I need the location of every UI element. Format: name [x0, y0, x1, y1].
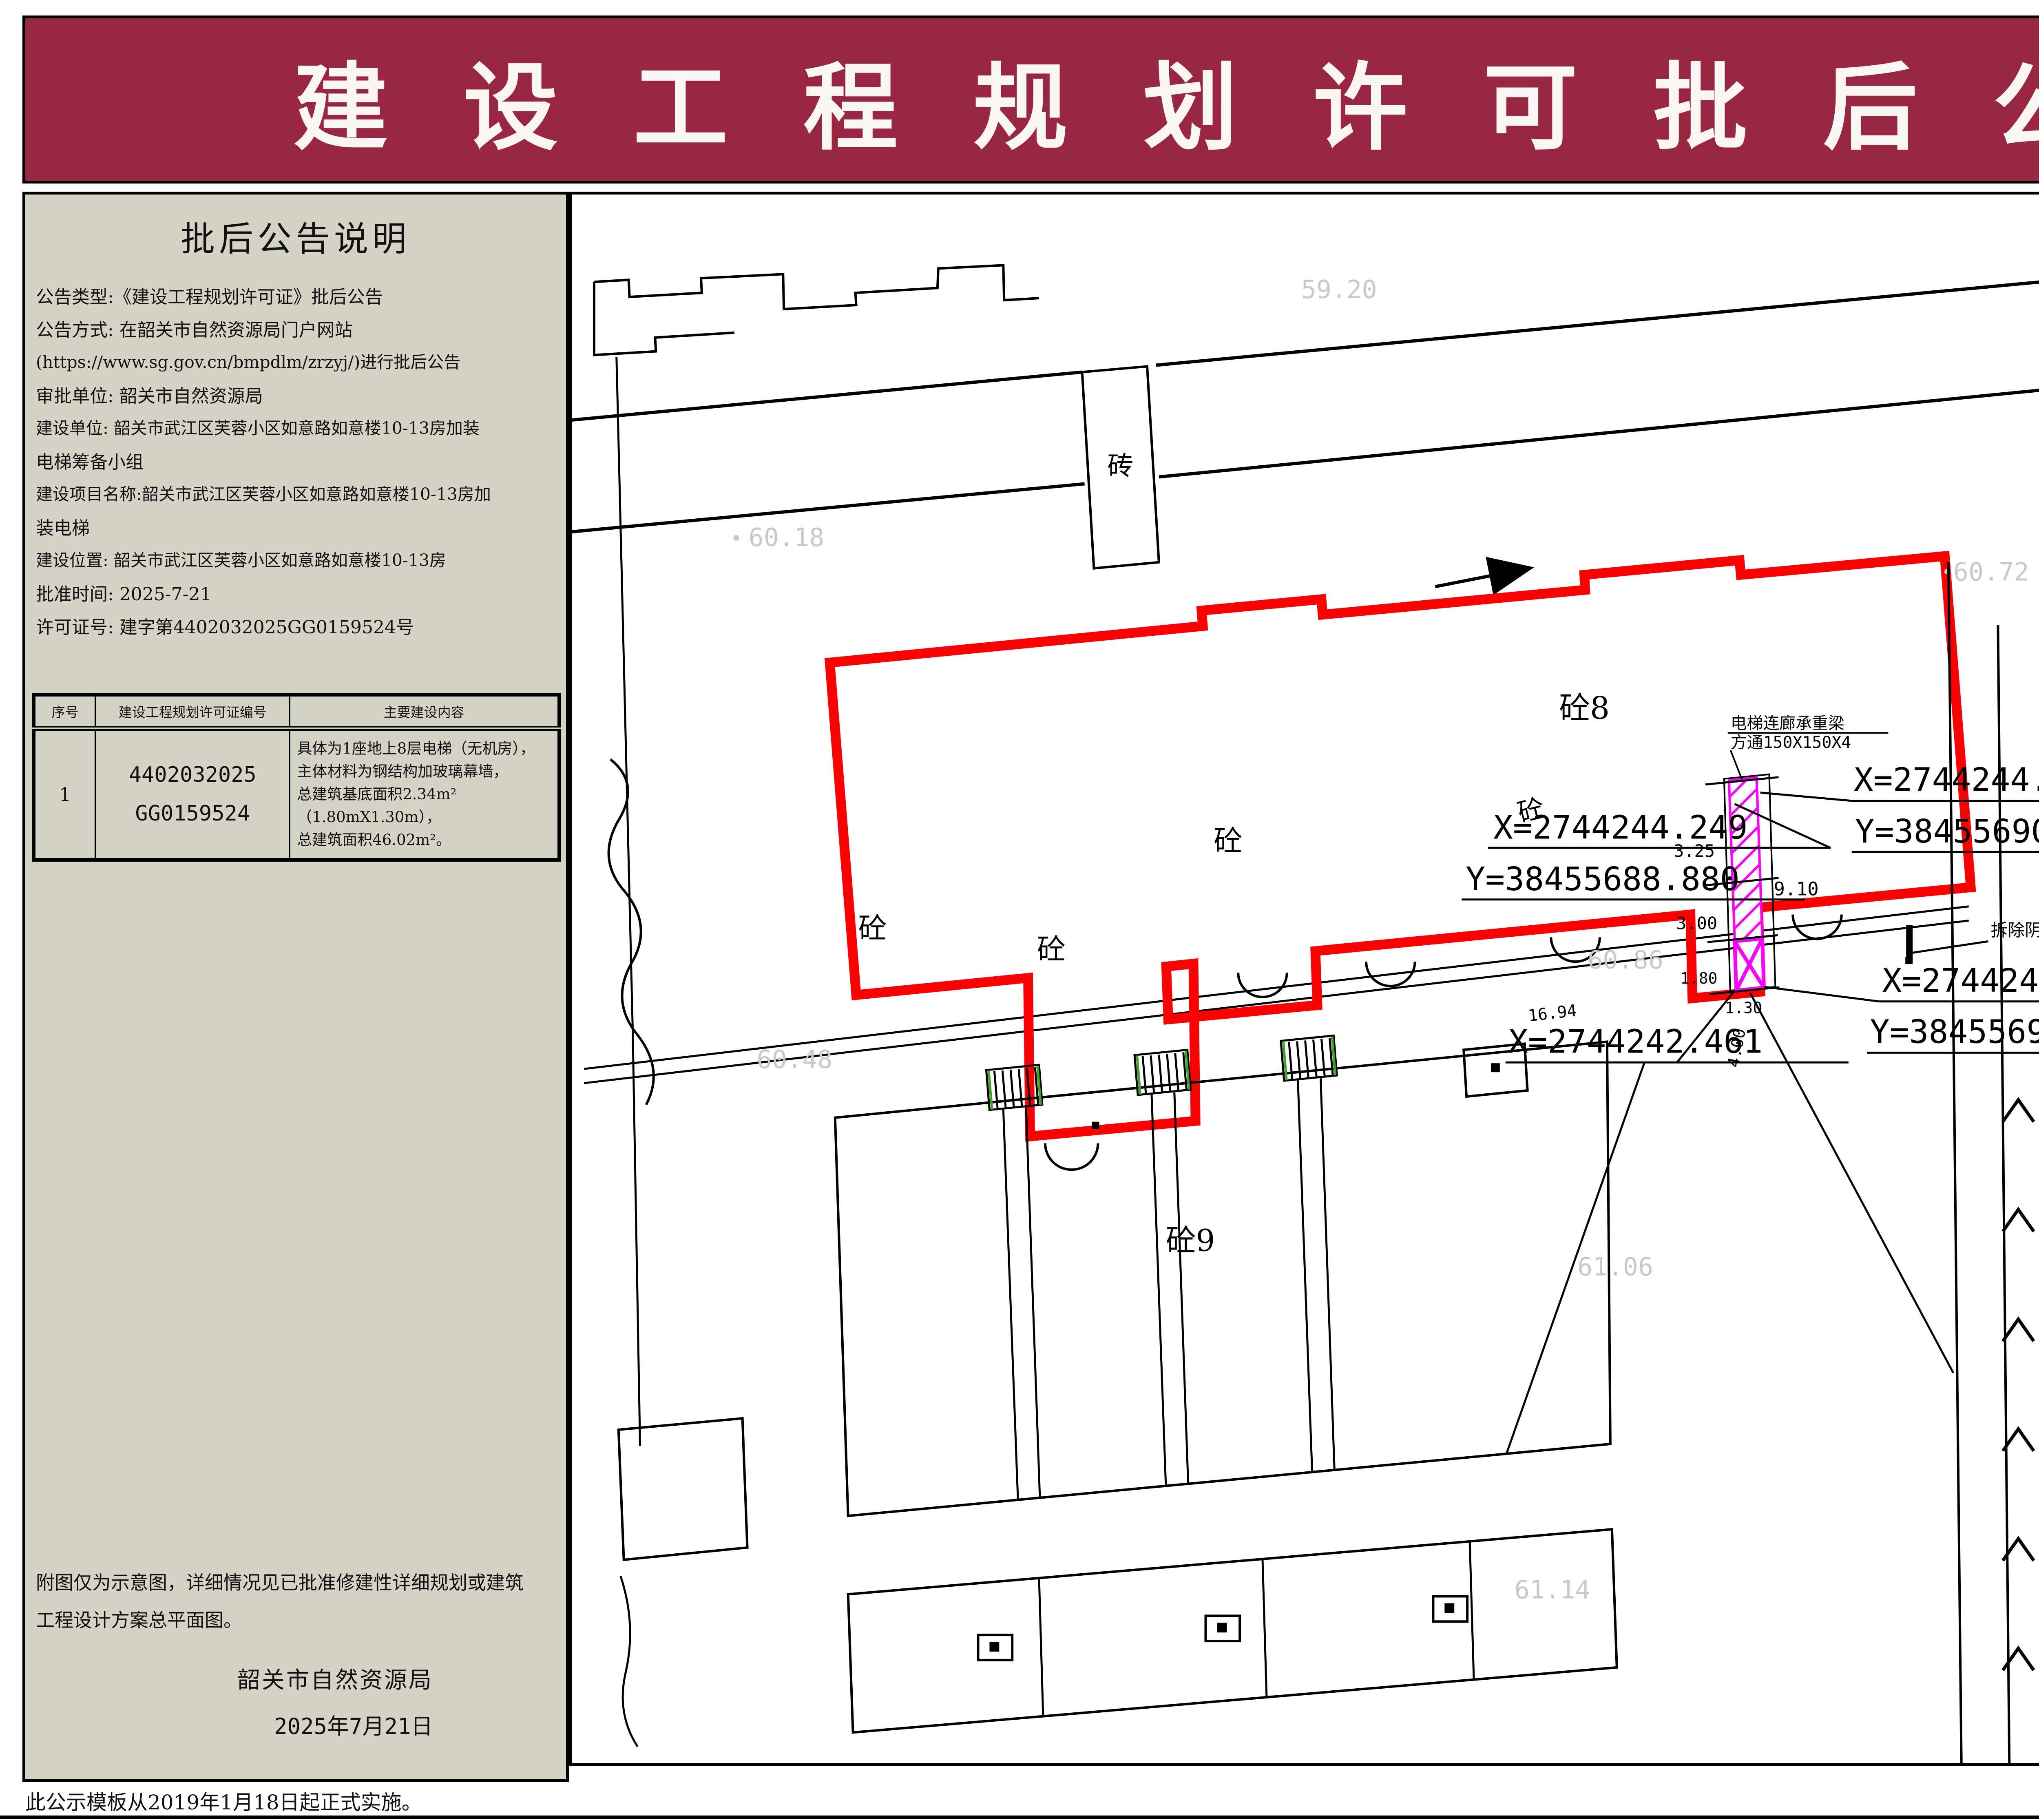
note-line: 工程设计方案总平面图。 [36, 1605, 242, 1632]
signature-date: 2025年7月21日 [274, 1708, 433, 1740]
info-line-builder: 建设单位: 韶关市武江区芙蓉小区如意路如意楼10-13房加装 [36, 414, 480, 439]
content-line: 主体材料为钢结构加玻璃幕墙， [297, 760, 551, 783]
spot-elevation: 60.86 [1588, 945, 1663, 975]
road-direction-arrow [1435, 569, 1524, 587]
tree-chevrons [2003, 475, 2039, 1670]
content-line: 总建筑基底面积2.34m²（1.80mX1.30m）， [297, 783, 551, 829]
spot-elevation: 60.18 [749, 523, 825, 552]
site-plan: 砖 59.20 60.18 16.94 砼8 砼 砼 砼 砼 [569, 192, 2039, 1766]
info-line-builder2: 电梯筹备小组 [36, 447, 144, 473]
footer-note: 此公示模板从2019年1月18日起正式实施。 [25, 1786, 422, 1816]
page-bottom-rule [0, 1816, 2039, 1819]
dimension-label: 16.94 [1527, 1001, 1578, 1025]
label-building-8: 砼8 [1559, 690, 1610, 726]
col-header-permit: 建设工程规划许可证编号 [95, 695, 290, 729]
signature-authority: 韶关市自然资源局 [237, 1662, 433, 1695]
beam-annotation: 电梯连廊承重梁 [1731, 714, 1844, 733]
notice-panel: 批后公告说明 公告类型:《建设工程规划许可证》批后公告 公告方式: 在韶关市自然… [22, 192, 569, 1782]
label-concrete: 砼 [858, 912, 887, 945]
notice-panel-title: 批后公告说明 [25, 212, 566, 261]
coordinate-label: X=2744242.461 [1508, 1022, 1763, 1060]
dimension-label: 9.10 [1774, 878, 1818, 900]
site-plan-drawing: 砖 59.20 60.18 16.94 砼8 砼 砼 砼 砼 [572, 195, 2039, 1763]
permit-number-line2: GG0159524 [97, 794, 288, 833]
col-header-no: 序号 [34, 695, 96, 729]
dimension-label: 3.00 [1676, 913, 1717, 933]
coordinate-label: X=2744242.610 [1882, 962, 2039, 1000]
permit-building-outline [830, 556, 1971, 1137]
spot-elevation: 61.06 [1577, 1252, 1653, 1281]
info-line-url: (https://www.sg.gov.cn/bmpdlm/zrzyj/)进行批… [36, 348, 460, 373]
page-title: 建 设 工 程 规 划 许 可 批 后 公 告 [293, 31, 2039, 168]
header-banner: 建 设 工 程 规 划 许 可 批 后 公 告 [22, 15, 2039, 184]
col-header-content: 主要建设内容 [290, 695, 559, 729]
permit-number-line1: 4402032025 [97, 756, 288, 794]
coordinate-label: X=2744244.398 [1854, 761, 2039, 799]
dimension-label: 1.80 [1680, 969, 1717, 987]
table-row: 1 4402032025 GG0159524 具体为1座地上8层电梯（无机房），… [34, 728, 560, 860]
permit-table: 序号 建设工程规划许可证编号 主要建设内容 1 4402032025 GG015… [32, 693, 561, 862]
cell-permit-number: 4402032025 GG0159524 [95, 728, 290, 860]
info-line-project: 建设项目名称:韶关市武江区芙蓉小区如意路如意楼10-13房加 [36, 480, 491, 505]
beam-annotation: 方通150X150X4 [1731, 733, 1851, 752]
coordinate-label: Y=38455688.880 [1466, 860, 1740, 898]
info-line-method: 公告方式: 在韶关市自然资源局门户网站 [36, 315, 353, 341]
lift-land-hatch [1729, 778, 1763, 940]
cell-no: 1 [34, 728, 96, 860]
label-building-9: 砼9 [1166, 1224, 1215, 1258]
dimension-label: 1.30 [1725, 999, 1762, 1017]
spot-elevation: 60.72 [1953, 557, 2029, 587]
info-line-type: 公告类型:《建设工程规划许可证》批后公告 [36, 282, 383, 308]
coordinate-label: Y=38455690.171 [1855, 812, 2039, 850]
label-concrete: 砼 [1214, 825, 1242, 858]
content-line: 具体为1座地上8层电梯（无机房）， [297, 737, 551, 760]
spot-elevation: 61.14 [1515, 1575, 1590, 1604]
info-line-approver: 审批单位: 韶关市自然资源局 [36, 381, 263, 407]
demolish-annotation: 拆除阴影部分现有围墙 [1990, 920, 2039, 940]
content-line: 总建筑面积46.02m²。 [297, 829, 551, 851]
spot-elevation: 59.20 [1301, 275, 1377, 304]
info-line-location: 建设位置: 韶关市武江区芙蓉小区如意路如意楼10-13房 [36, 546, 446, 571]
spot-elevation: 60.48 [756, 1045, 832, 1074]
info-line-project2: 装电梯 [36, 513, 90, 540]
info-line-permitno: 许可证号: 建字第4402032025GG0159524号 [36, 613, 414, 639]
label-concrete: 砼 [1037, 933, 1066, 966]
note-line: 附图仅为示意图，详细情况见已批准修建性详细规划或建筑 [36, 1568, 524, 1595]
cell-main-content: 具体为1座地上8层电梯（无机房）， 主体材料为钢结构加玻璃幕墙， 总建筑基底面积… [290, 728, 559, 860]
info-line-date: 批准时间: 2025-7-21 [36, 579, 212, 606]
label-brick-building: 砖 [1107, 451, 1133, 481]
coordinate-label: X=2744244.249 [1493, 808, 1748, 846]
announcement-page: 建 设 工 程 规 划 许 可 批 后 公 告 批后公告说明 公告类型:《建设工… [0, 0, 2039, 1820]
